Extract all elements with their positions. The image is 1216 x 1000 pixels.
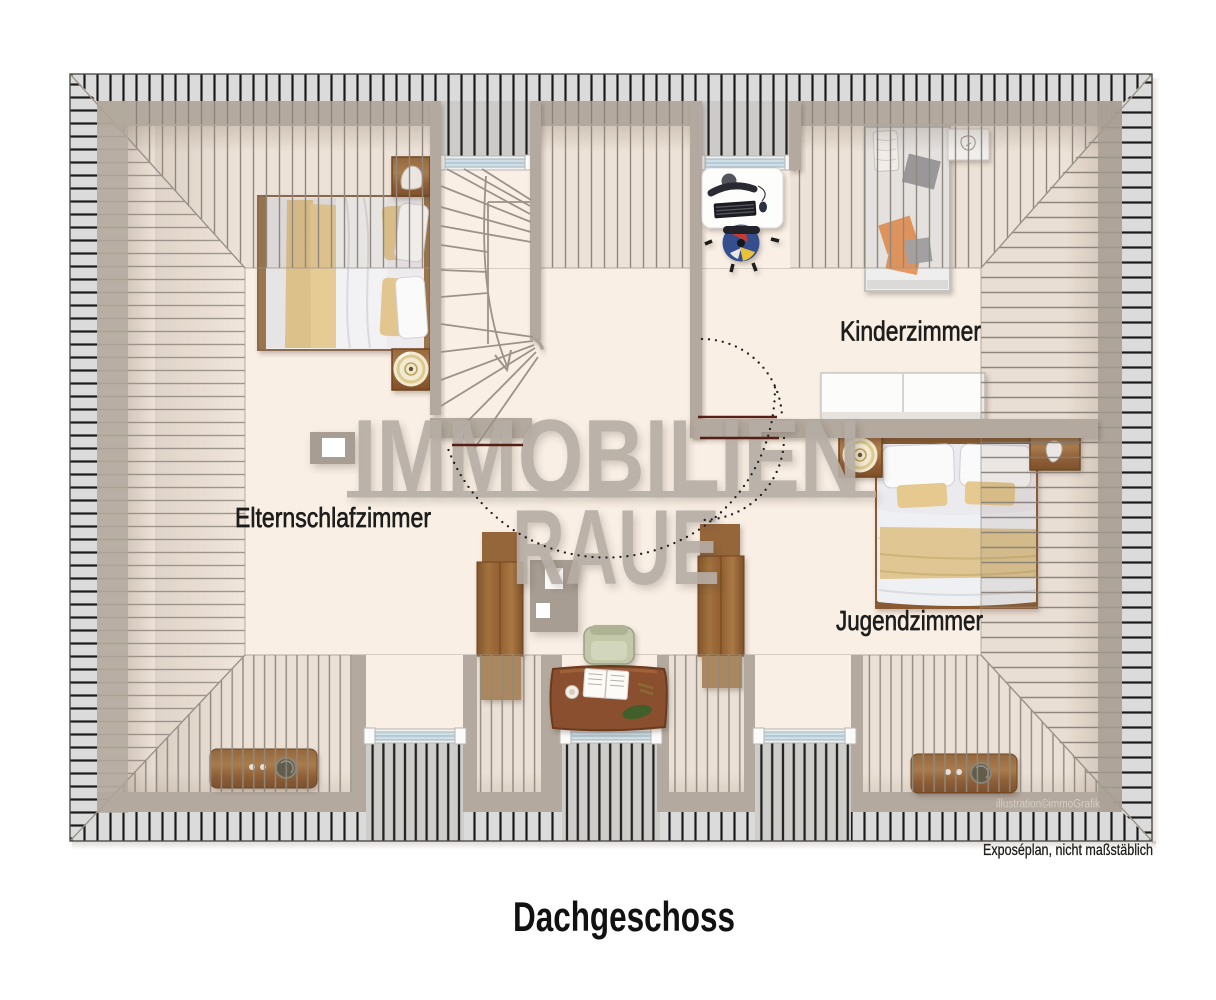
- svg-text:Kinderzimmer: Kinderzimmer: [840, 316, 981, 347]
- svg-text:Dachgeschoss: Dachgeschoss: [513, 893, 735, 940]
- svg-text:Elternschlafzimmer: Elternschlafzimmer: [235, 502, 431, 533]
- svg-text:RAUE: RAUE: [512, 487, 720, 607]
- svg-text:Jugendzimmer: Jugendzimmer: [836, 605, 983, 636]
- svg-text:illustration©immoGrafik: illustration©immoGrafik: [996, 799, 1100, 811]
